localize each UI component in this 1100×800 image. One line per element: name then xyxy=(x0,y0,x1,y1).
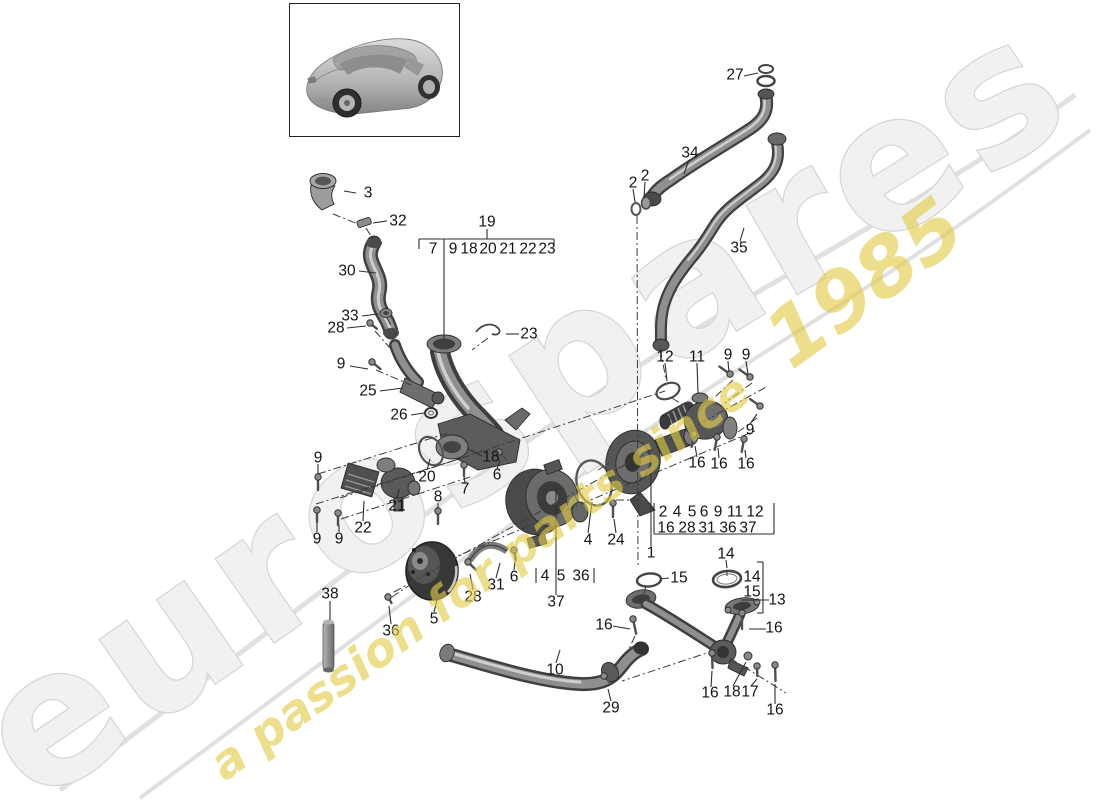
leader-line xyxy=(373,221,387,223)
part-callout-6-table-row1: 6 xyxy=(700,504,709,520)
leader-line xyxy=(347,326,366,328)
part-callout-28-table-row2: 28 xyxy=(678,520,695,536)
bolt-icon xyxy=(750,399,763,409)
assembly-axis-line xyxy=(637,216,638,568)
bolt-icon xyxy=(314,507,320,522)
part-callout-23: 23 xyxy=(520,326,537,342)
part-callout-28: 28 xyxy=(464,589,481,605)
bolt-icon xyxy=(385,594,392,603)
part-callout-7: 7 xyxy=(461,481,470,497)
clamp-26 xyxy=(425,408,437,418)
part-callout-22-g19: 22 xyxy=(519,241,536,257)
water-pump-37 xyxy=(498,460,588,549)
bolt-icon xyxy=(335,510,341,525)
water-pipe-35 xyxy=(653,133,786,351)
part-callout-3: 3 xyxy=(364,185,373,201)
dowel-pin-38 xyxy=(323,620,334,673)
wire-clip-23 xyxy=(476,325,500,335)
part-callout-16: 16 xyxy=(595,617,612,633)
part-callout-16: 16 xyxy=(688,455,705,471)
part-callout-29: 29 xyxy=(602,700,619,716)
o-ring-12 xyxy=(654,380,682,403)
o-ring-15 xyxy=(636,572,661,587)
part-callout-6: 6 xyxy=(493,467,502,483)
bolt-icon xyxy=(610,500,616,517)
part-callout-5-g436: 5 xyxy=(557,568,566,584)
part-callout-15-g1314: 15 xyxy=(743,584,760,600)
part-callout-1: 1 xyxy=(647,545,656,561)
part-callout-31-table-row2: 31 xyxy=(698,520,715,536)
part-callout-9: 9 xyxy=(314,450,323,466)
part-callout-18-g19: 18 xyxy=(460,241,477,257)
bolt-icon xyxy=(772,662,778,681)
part-callout-8: 8 xyxy=(434,489,443,505)
vehicle-thumbnail-box xyxy=(289,3,460,137)
bolt-icon xyxy=(461,462,467,476)
part-callout-20: 20 xyxy=(418,469,435,485)
part-callout-25: 25 xyxy=(359,383,376,399)
part-callout-12: 12 xyxy=(656,349,673,365)
part-callout-16: 16 xyxy=(701,685,718,701)
assembly-axis-line xyxy=(472,338,488,350)
part-callout-11-table-row1: 11 xyxy=(727,504,743,520)
water-pipe-10 xyxy=(437,642,648,685)
part-callout-9-table-row1: 9 xyxy=(714,504,723,520)
part-callout-16-table-row2: 16 xyxy=(657,520,674,536)
part-callout-18: 18 xyxy=(723,684,740,700)
part-callout-21: 21 xyxy=(388,498,405,514)
part-callout-6: 6 xyxy=(510,569,519,585)
part-callout-37: 37 xyxy=(547,594,564,610)
part-callout-27: 27 xyxy=(726,67,743,83)
water-distributor-13 xyxy=(625,588,760,676)
nut-33 xyxy=(380,309,392,318)
part-callout-36: 36 xyxy=(382,623,399,639)
part-callout-22: 22 xyxy=(354,520,371,536)
bolt-icon xyxy=(465,559,476,570)
part-callout-37-table-row2: 37 xyxy=(739,520,756,536)
part-callout-31: 31 xyxy=(487,577,504,593)
leader-line xyxy=(380,388,403,391)
bolt-icon xyxy=(719,367,733,378)
part-callout-12-table-row1: 12 xyxy=(746,504,763,520)
part-callout-9: 9 xyxy=(742,347,751,363)
assembly-axis-line xyxy=(725,383,752,403)
assembly-axis-line xyxy=(333,214,358,224)
part-callout-4: 4 xyxy=(584,532,593,548)
bolt-icon xyxy=(369,359,381,369)
part-callout-34: 34 xyxy=(681,145,698,161)
part-callout-9-g19: 9 xyxy=(449,241,458,257)
leader-line xyxy=(697,363,698,393)
bolt-icon xyxy=(435,508,441,524)
part-callout-5: 5 xyxy=(430,611,439,627)
part-callout-26: 26 xyxy=(390,407,407,423)
part-callout-14: 14 xyxy=(717,546,734,562)
part-callout-24: 24 xyxy=(607,532,624,548)
part-callout-23-g19: 23 xyxy=(538,241,555,257)
part-callout-11: 11 xyxy=(689,349,705,365)
leader-line xyxy=(665,363,667,381)
hose-clamp-32 xyxy=(356,217,371,228)
leader-line xyxy=(363,501,364,521)
part-callout-15: 15 xyxy=(670,570,687,586)
leader-line xyxy=(350,366,368,369)
part-callout-2: 2 xyxy=(629,175,638,191)
part-callout-10: 10 xyxy=(546,662,563,678)
leader-line xyxy=(411,413,424,415)
part-callout-9: 9 xyxy=(335,531,344,547)
bolt-icon xyxy=(739,370,753,381)
part-callout-5-table-row1: 5 xyxy=(688,504,697,520)
part-callout-9: 9 xyxy=(724,347,733,363)
bolt-icon xyxy=(367,320,377,329)
part-callout-4-table-row1: 4 xyxy=(673,504,682,520)
part-callout-18: 18 xyxy=(482,449,499,465)
part-callout-13: 13 xyxy=(768,592,785,608)
assembly-axis-line xyxy=(715,380,733,397)
parts-artwork xyxy=(0,0,1100,800)
filler-neck-3 xyxy=(310,174,336,211)
part-callout-4-g436: 4 xyxy=(541,568,550,584)
bolt-icon xyxy=(714,434,720,450)
part-callout-2-table-row1: 2 xyxy=(659,504,668,520)
leader-line xyxy=(588,502,592,533)
part-callout-17: 17 xyxy=(741,684,758,700)
bolt-icon xyxy=(630,616,636,634)
part-callout-28: 28 xyxy=(327,320,344,336)
part-callout-38: 38 xyxy=(321,586,338,602)
part-callout-30: 30 xyxy=(338,263,355,279)
parts-diagram-page: eurospares xyxy=(0,0,1100,800)
part-callout-16: 16 xyxy=(765,620,782,636)
part-callout-21-g19: 21 xyxy=(499,241,516,257)
part-callout-7-g19: 7 xyxy=(429,241,438,257)
part-callout-2: 2 xyxy=(641,168,650,184)
bolt-icon xyxy=(744,652,752,660)
leader-line xyxy=(744,73,758,76)
part-callout-36-g436: 36 xyxy=(572,568,589,584)
bolt-icon xyxy=(511,547,517,560)
leader-line xyxy=(344,191,356,193)
part-callout-36-table-row2: 36 xyxy=(719,520,736,536)
bolt-icon xyxy=(754,663,760,676)
part-callout-35: 35 xyxy=(730,240,747,256)
vehicle-thumbnail-911 xyxy=(290,4,456,133)
part-callout-16: 16 xyxy=(766,702,783,718)
part-callout-9: 9 xyxy=(337,356,346,372)
part-callout-19: 19 xyxy=(478,214,495,230)
part-callout-16: 16 xyxy=(710,456,727,472)
part-callout-9: 9 xyxy=(746,422,755,438)
part-callout-32: 32 xyxy=(389,213,406,229)
bolt-icon xyxy=(315,474,321,490)
part-callout-16: 16 xyxy=(737,456,754,472)
sealing-rings-27 xyxy=(758,65,775,86)
part-callout-9: 9 xyxy=(313,531,322,547)
part-callout-20-g19: 20 xyxy=(479,241,496,257)
leader-line xyxy=(613,626,630,629)
